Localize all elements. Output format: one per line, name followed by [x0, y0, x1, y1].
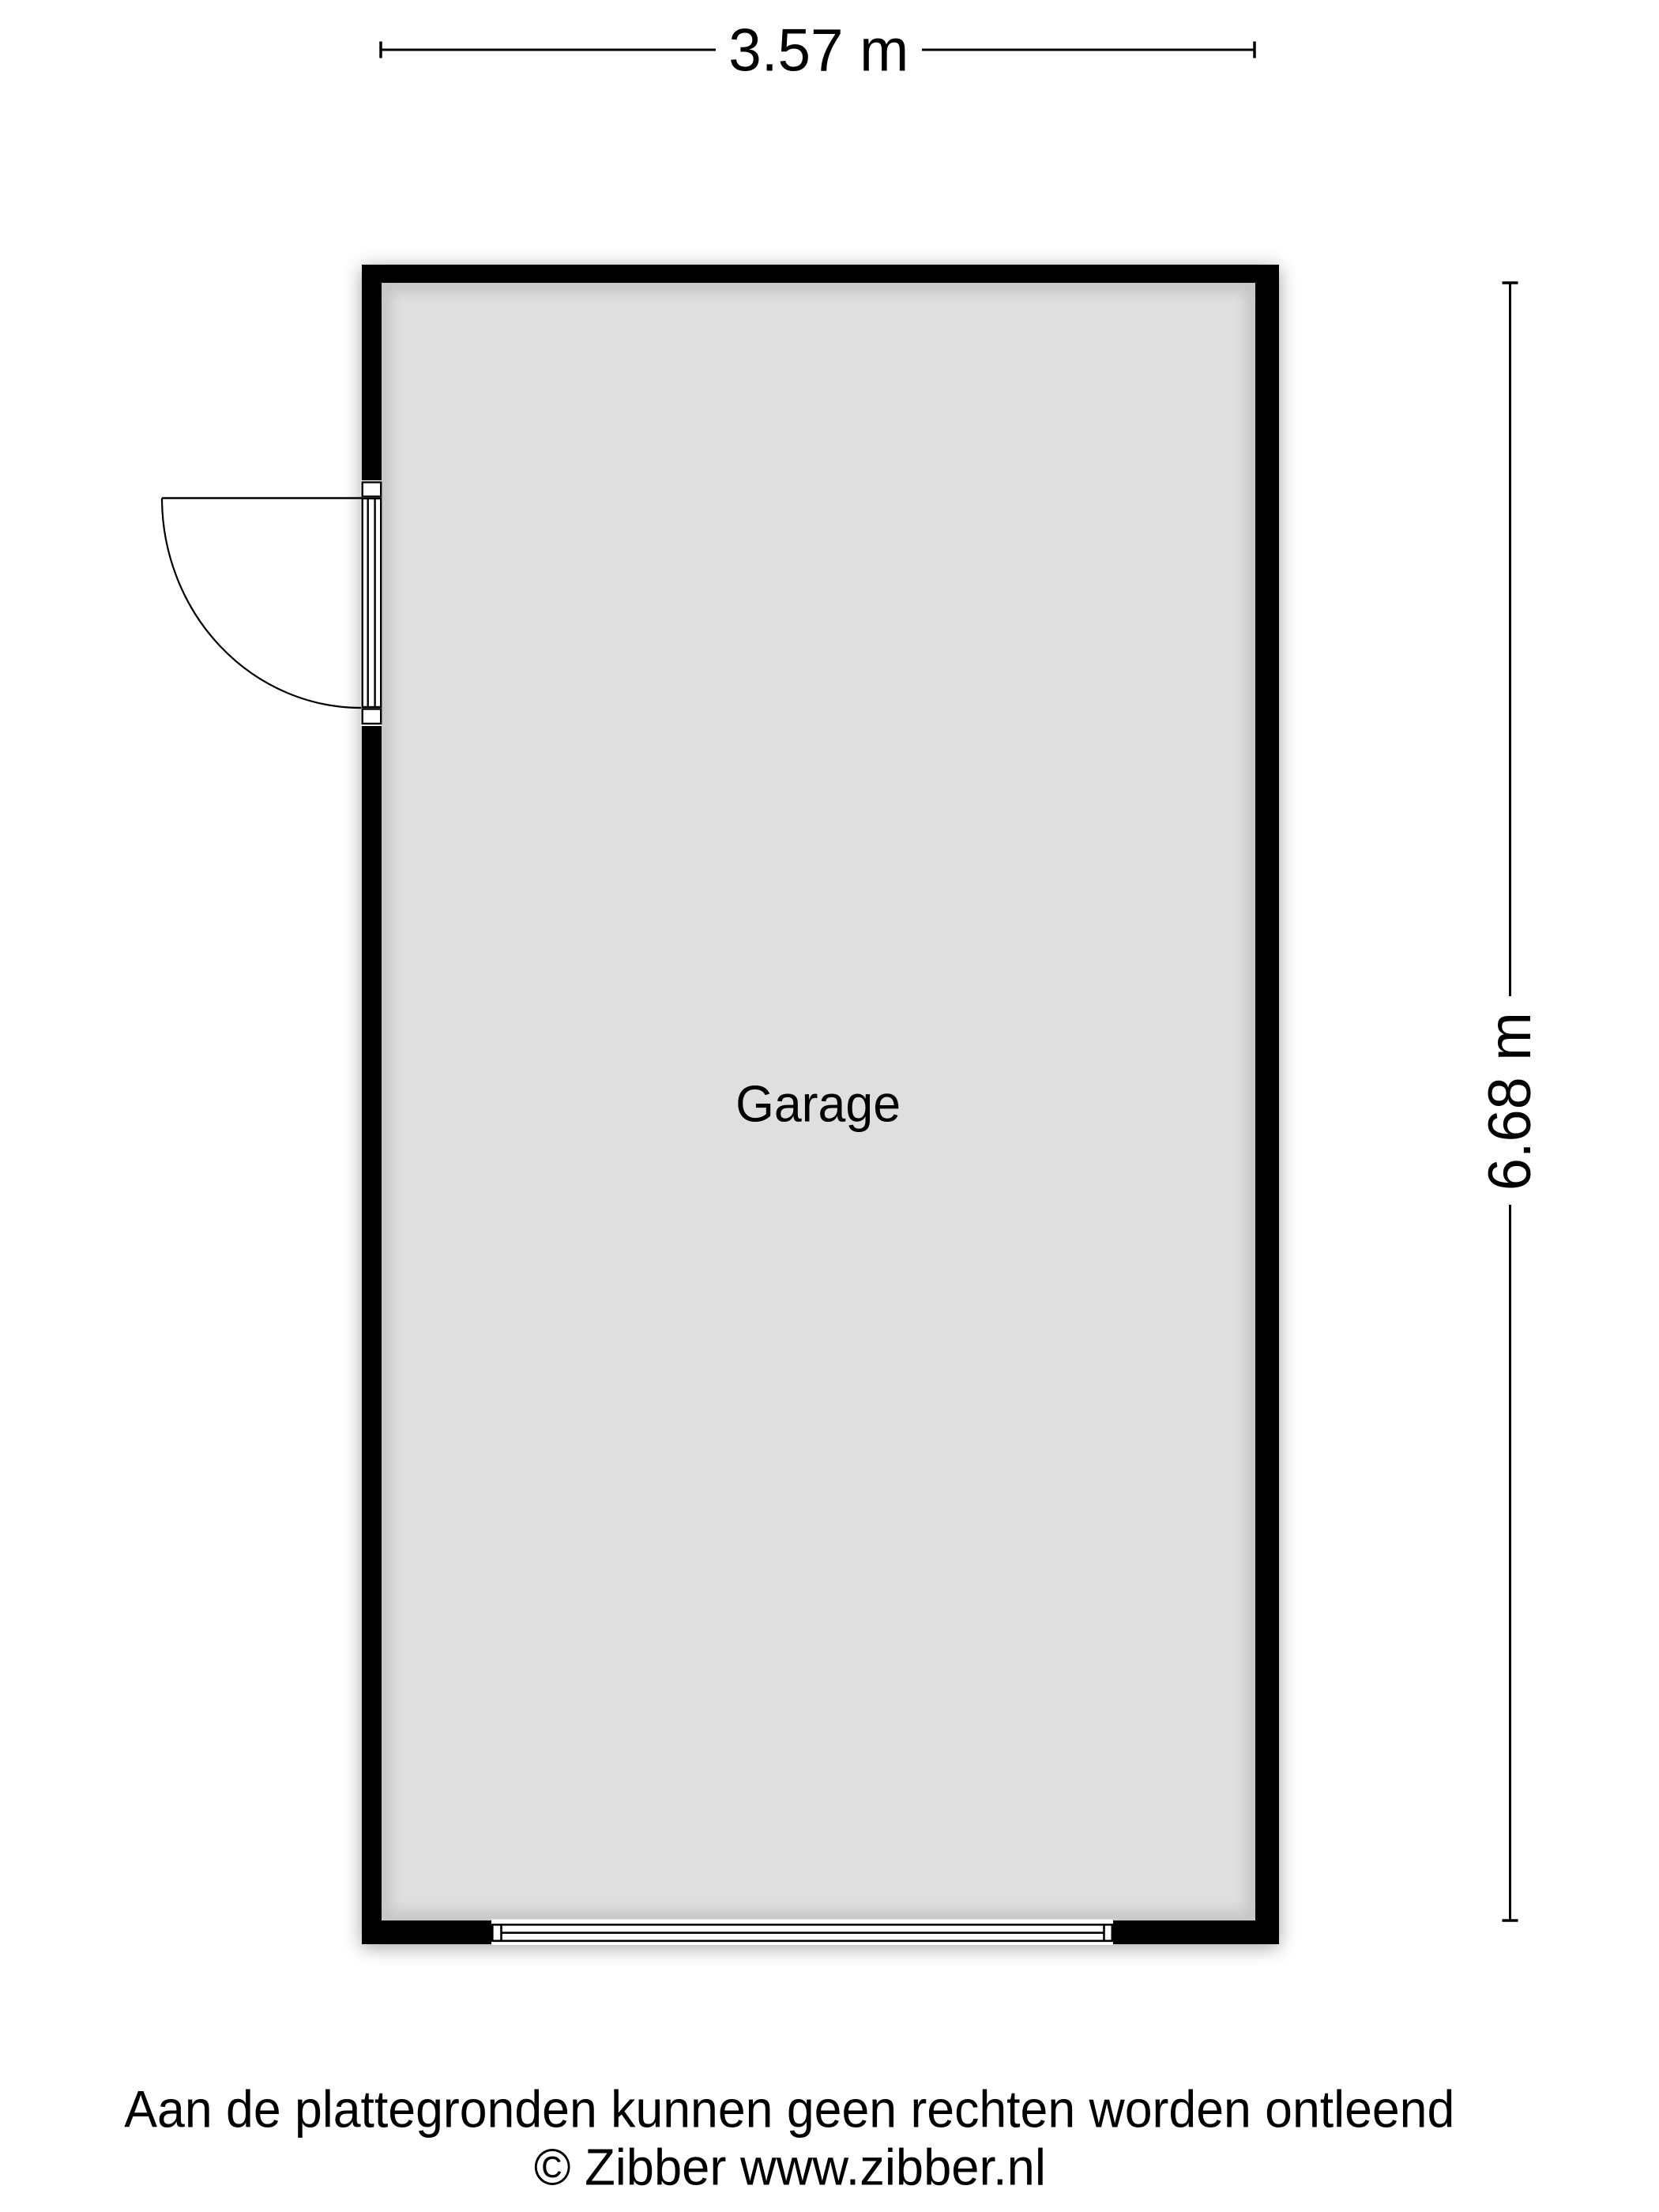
- svg-text:3.57 m: 3.57 m: [728, 17, 908, 85]
- svg-text:6.68 m: 6.68 m: [1477, 1012, 1544, 1191]
- svg-text:Garage: Garage: [735, 1075, 901, 1133]
- svg-text:© Zibber www.zibber.nl: © Zibber www.zibber.nl: [534, 2138, 1046, 2195]
- svg-text:Aan de plattegronden kunnen ge: Aan de plattegronden kunnen geen rechten…: [124, 2079, 1454, 2138]
